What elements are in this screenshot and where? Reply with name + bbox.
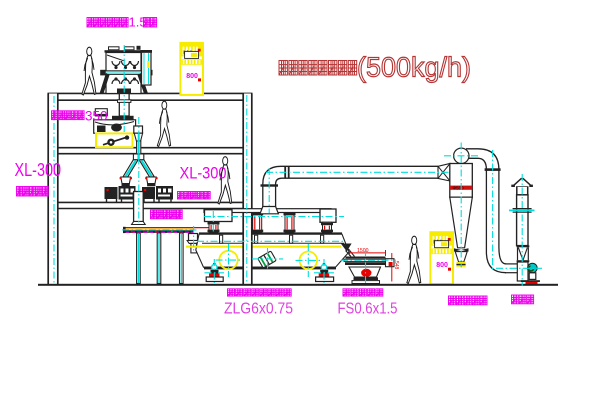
svg-text:(500kg/h): (500kg/h) xyxy=(357,52,471,83)
svg-text:XL-300: XL-300 xyxy=(180,165,227,183)
svg-text:FS0.6x1.5: FS0.6x1.5 xyxy=(338,301,398,318)
svg-text:ZLG6x0.75: ZLG6x0.75 xyxy=(224,301,293,318)
svg-text:Φ500: Φ500 xyxy=(453,185,465,190)
svg-text:800: 800 xyxy=(436,262,448,269)
svg-text:350: 350 xyxy=(85,109,108,124)
svg-text:1500: 1500 xyxy=(357,248,369,254)
svg-text:XL-300: XL-300 xyxy=(15,160,62,180)
svg-text:800: 800 xyxy=(186,73,198,80)
